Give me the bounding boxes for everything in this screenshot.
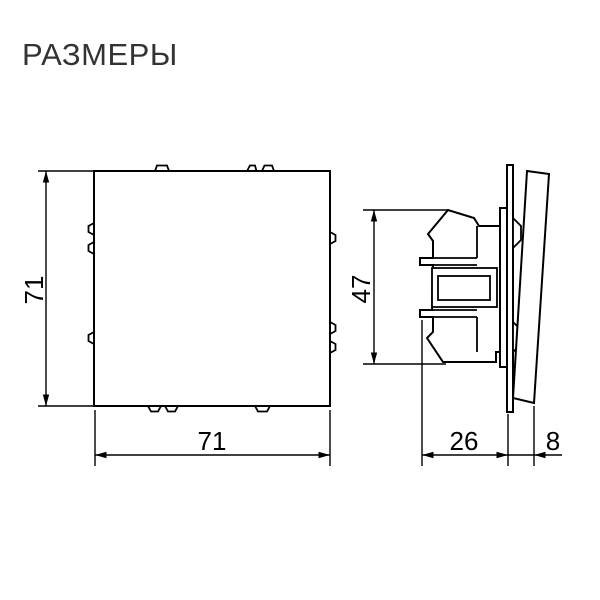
front-width-dim-label: 71 — [198, 426, 227, 456]
side-view-claw-channel-inner — [438, 276, 490, 300]
front-width-dimension: 71 — [95, 410, 330, 466]
side-depth-arrow-right — [497, 452, 509, 458]
dimensions-page: РАЗМЕРЫ 71 71 — [0, 0, 600, 600]
side-height-arrow-up — [371, 210, 377, 222]
side-key-depth-arrow — [534, 452, 546, 458]
side-view-rocker-key — [513, 171, 549, 403]
front-height-arrow-down — [43, 395, 49, 407]
front-height-dimension: 71 — [19, 171, 94, 406]
side-view-actuator-upper — [513, 218, 521, 248]
side-height-dim-label: 47 — [346, 275, 376, 304]
front-view-outline — [94, 171, 330, 406]
front-width-arrow-right — [319, 452, 331, 458]
front-view: 71 71 — [19, 166, 336, 467]
side-depth-dim-label: 26 — [450, 426, 479, 456]
side-depth-arrow-left — [422, 452, 434, 458]
front-height-dim-label: 71 — [19, 276, 49, 305]
side-view-frame-plate — [507, 165, 513, 412]
side-view-support-plate — [500, 208, 507, 367]
front-width-arrow-left — [95, 452, 107, 458]
side-key-depth-dim-label: 8 — [546, 426, 560, 456]
side-view: 47 26 8 — [346, 165, 562, 466]
side-height-arrow-down — [371, 353, 377, 365]
front-height-arrow-up — [43, 171, 49, 183]
technical-drawing: 71 71 — [0, 0, 600, 600]
